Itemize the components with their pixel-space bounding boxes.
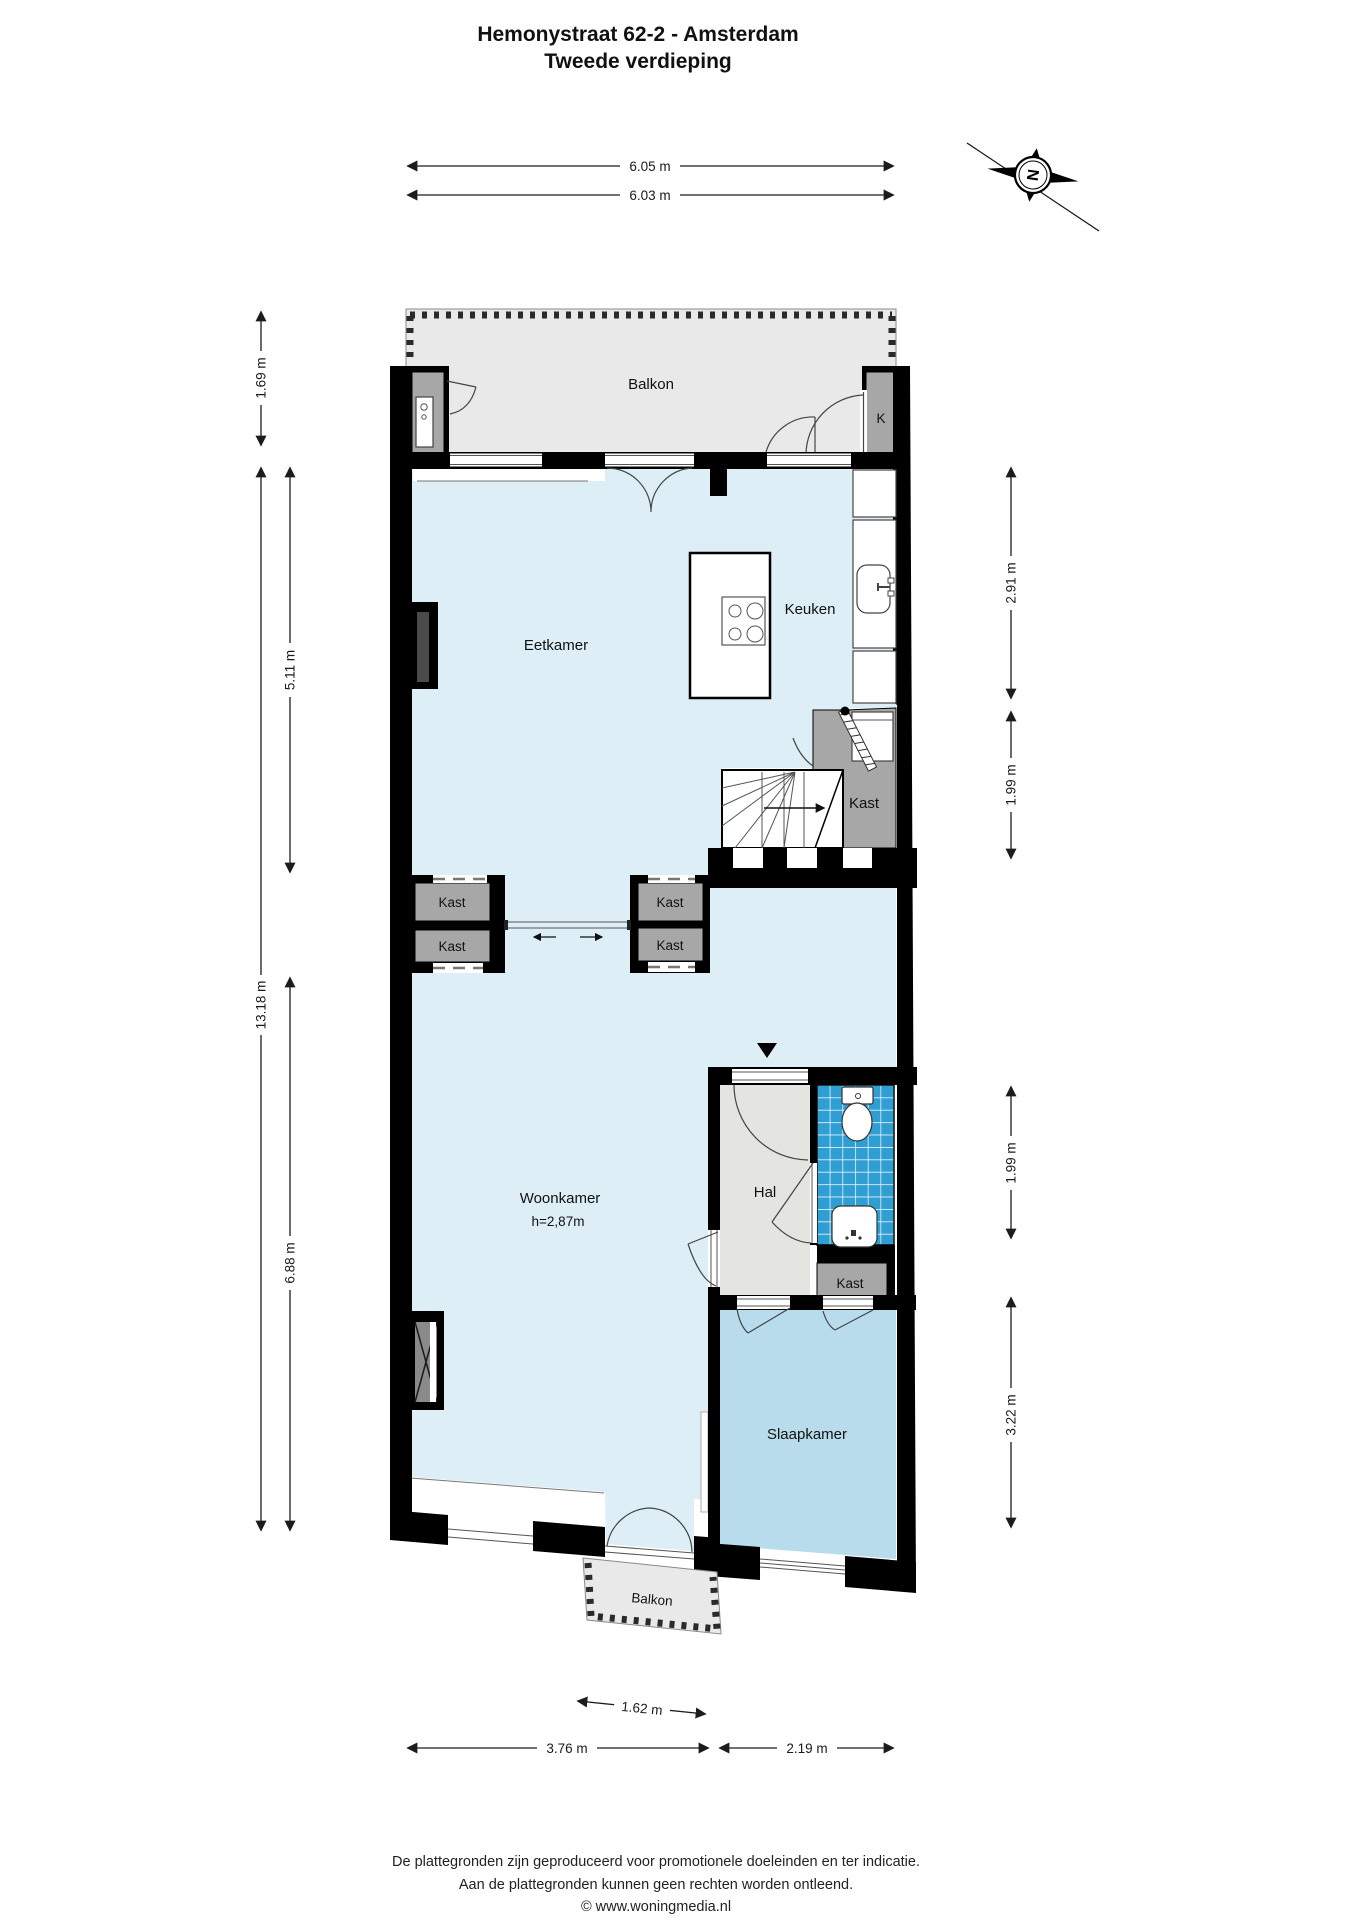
footer-line-3: © www.woningmedia.nl [581, 1899, 731, 1915]
dim-right-3: 1.99 m [1004, 1142, 1019, 1183]
keuken-label: Keuken [785, 601, 836, 618]
hal-closet-label: Kast [836, 1276, 863, 1291]
woonkamer-height-label: h=2,87m [532, 1214, 585, 1229]
dim-bottom-3: 2.19 m [786, 1741, 827, 1756]
wall-stub [710, 467, 727, 496]
k-closet-label: K [876, 411, 885, 426]
footer-line-1: De plattegronden zijn geproduceerd voor … [392, 1854, 920, 1870]
dim-right-4: 3.22 m [1004, 1394, 1019, 1435]
svg-text:N: N [1025, 168, 1043, 182]
eetkamer-label: Eetkamer [524, 637, 588, 654]
kitchen-sink-icon [857, 565, 890, 613]
wall-left [390, 452, 412, 1538]
kast-label: Kast [656, 938, 683, 953]
dim-bottom-2: 3.76 m [546, 1741, 587, 1756]
footer-line-2: Aan de plattegronden kunnen geen rechten… [459, 1877, 853, 1893]
dim-top-1: 6.05 m [629, 159, 670, 174]
dim-top-2: 6.03 m [629, 188, 670, 203]
flue-shaft [410, 1311, 444, 1410]
dim-left-4: 6.88 m [283, 1242, 298, 1283]
floorplan-page: Hemonystraat 62-2 - Amsterdam Tweede ver… [0, 0, 1358, 1920]
washbasin-icon [832, 1206, 877, 1247]
page-title: Hemonystraat 62-2 - Amsterdam [477, 23, 798, 46]
dim-right-1: 2.91 m [1004, 562, 1019, 603]
woonkamer-label: Woonkamer [520, 1190, 601, 1207]
kast-label: Kast [438, 939, 465, 954]
toilet-icon [842, 1087, 873, 1141]
divider-passage [505, 875, 630, 975]
chimney-breast [412, 602, 438, 689]
floorplan-drawing: Hemonystraat 62-2 - Amsterdam Tweede ver… [0, 0, 1358, 1920]
dim-left-1: 1.69 m [254, 357, 269, 398]
balcony-top-label: Balkon [628, 376, 674, 393]
window-recess-top [413, 468, 605, 481]
wall-slaapkamer-left [708, 1297, 720, 1547]
boiler-icon [416, 397, 433, 447]
kast-label: Kast [656, 895, 683, 910]
stair-closet-label: Kast [849, 795, 880, 812]
dim-left-3: 13.18 m [254, 981, 269, 1030]
kitchen-island [690, 553, 770, 698]
window-slaapkamer [760, 1556, 845, 1577]
compass-north-icon: N [967, 142, 1099, 231]
dim-left-2: 5.11 m [283, 650, 298, 690]
wall-niche [701, 1412, 708, 1512]
slaapkamer-label: Slaapkamer [767, 1426, 847, 1443]
window-top-a [450, 454, 542, 467]
kast-label: Kast [438, 895, 465, 910]
kitchen-counter [853, 470, 896, 703]
hal-label: Hal [754, 1184, 777, 1201]
hal-closet: Kast [817, 1262, 895, 1297]
wall-below-stairs [708, 848, 917, 888]
dim-right-2: 1.99 m [1004, 764, 1019, 805]
page-subtitle: Tweede verdieping [544, 50, 732, 73]
